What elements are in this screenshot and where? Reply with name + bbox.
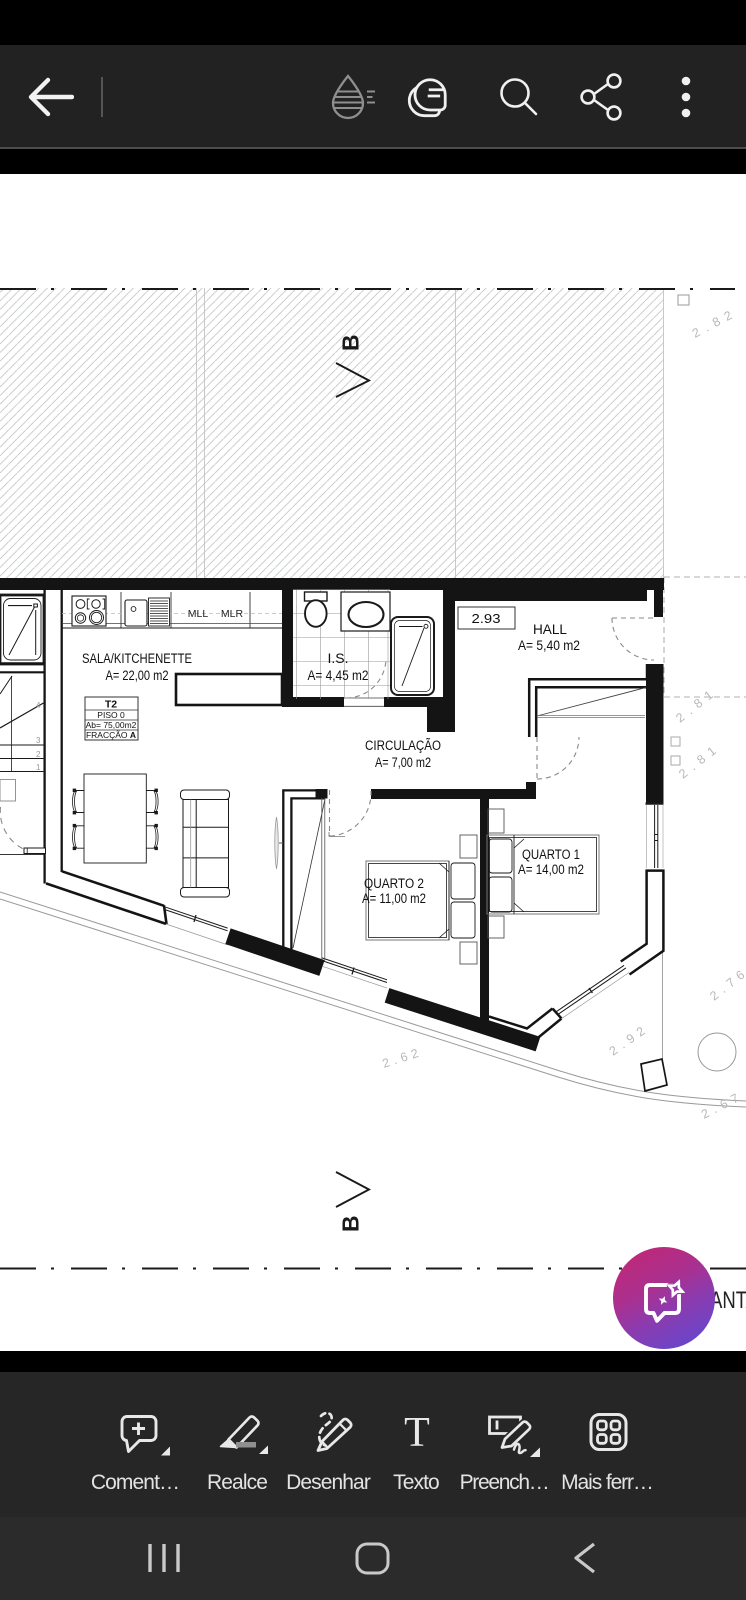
svg-text:B: B (338, 1215, 364, 1232)
svg-text:2.82: 2.82 (690, 308, 735, 341)
svg-text:A= 5,40 m2: A= 5,40 m2 (518, 638, 580, 653)
svg-text:A= 11,00 m2: A= 11,00 m2 (362, 891, 426, 906)
svg-text:4: 4 (36, 701, 41, 710)
svg-text:A= 14,00 m2: A= 14,00 m2 (518, 862, 584, 877)
svg-text:ANTA: ANTA (710, 1287, 746, 1314)
svg-text:3: 3 (36, 736, 41, 745)
svg-text:A= 22,00 m2: A= 22,00 m2 (106, 668, 169, 683)
svg-text:HALL: HALL (533, 622, 567, 637)
svg-text:QUARTO 2: QUARTO 2 (364, 876, 424, 891)
svg-text:2.81: 2.81 (676, 744, 719, 782)
svg-text:2.62: 2.62 (381, 1046, 421, 1071)
svg-text:B: B (338, 334, 364, 351)
svg-text:2.93: 2.93 (472, 612, 501, 626)
svg-text:2.81: 2.81 (673, 688, 716, 726)
svg-text:A= 7,00 m2: A= 7,00 m2 (375, 755, 431, 770)
svg-text:FRACÇÃO A: FRACÇÃO A (86, 730, 136, 740)
svg-text:SALA/KITCHENETTE: SALA/KITCHENETTE (82, 651, 192, 666)
svg-text:2.67: 2.67 (699, 1091, 741, 1122)
svg-text:MLR: MLR (221, 608, 244, 620)
svg-text:2: 2 (36, 750, 41, 759)
svg-text:QUARTO 1: QUARTO 1 (522, 847, 580, 862)
svg-text:I.S.: I.S. (328, 651, 349, 666)
svg-text:PISO 0: PISO 0 (97, 710, 125, 720)
svg-text:Ab= 75,00m2: Ab= 75,00m2 (86, 720, 137, 730)
svg-text:CIRCULAÇÃO: CIRCULAÇÃO (365, 738, 441, 753)
svg-text:MLL: MLL (188, 608, 209, 620)
svg-text:1: 1 (36, 763, 41, 772)
svg-text:T2: T2 (105, 699, 117, 711)
svg-text:2.92: 2.92 (607, 1024, 648, 1058)
svg-text:2.76: 2.76 (707, 968, 746, 1004)
svg-text:A= 4,45 m2: A= 4,45 m2 (308, 668, 369, 683)
